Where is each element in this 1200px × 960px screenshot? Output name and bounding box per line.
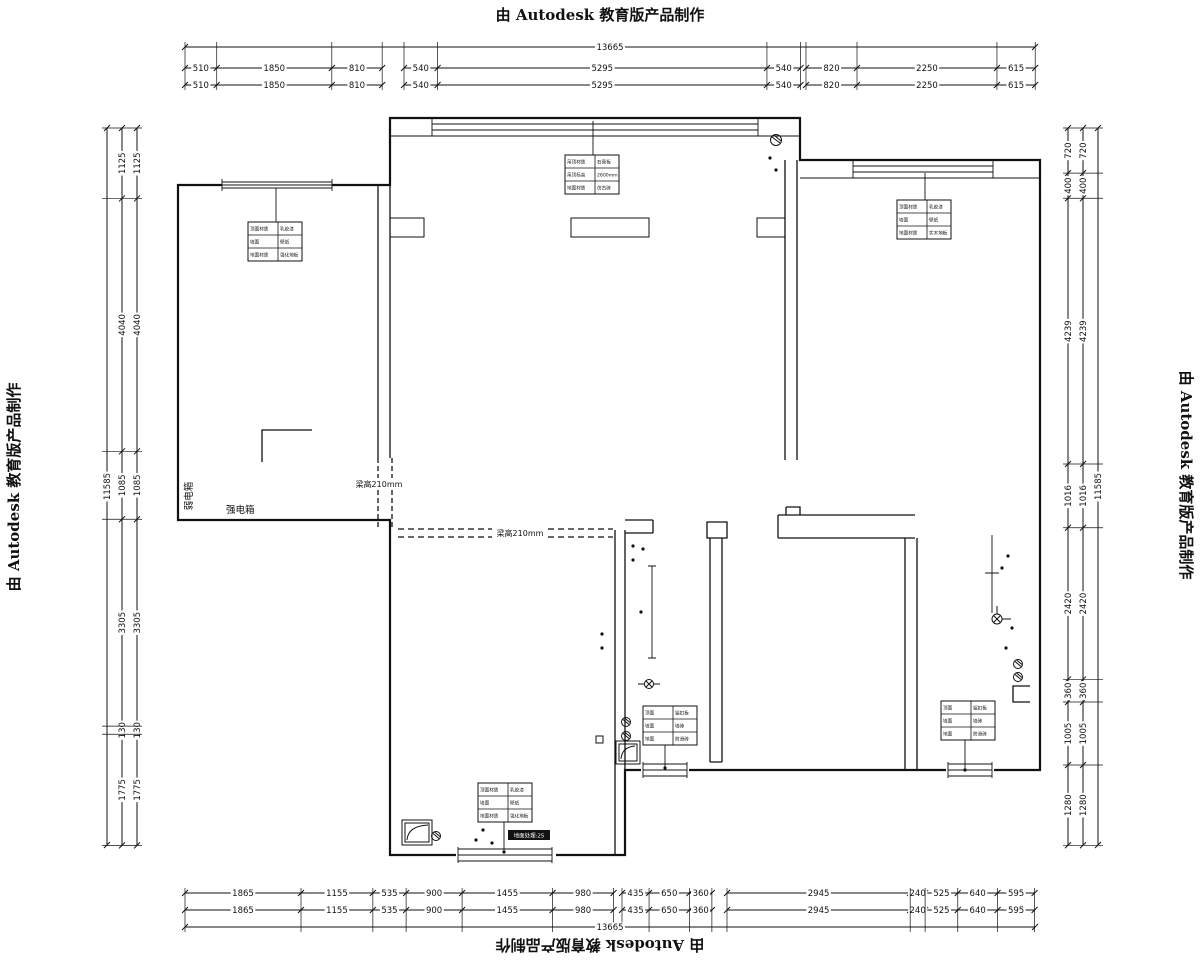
strong-electric-box-label: 强电箱 — [226, 504, 255, 516]
dim-text: 540 — [413, 64, 429, 74]
legend-cell: 墙面 — [250, 239, 260, 246]
legend-cell: 铝扣板 — [675, 710, 689, 717]
dim-text: 13665 — [596, 923, 623, 933]
legend-cell: 防滑砖 — [675, 736, 689, 743]
dim-text: 820 — [823, 81, 839, 91]
column-pillars — [390, 218, 785, 237]
dim-text: 1455 — [497, 906, 519, 916]
stamp-bottom: 由 Autodesk 教育版产品制作 — [496, 936, 705, 954]
legend-cell: 顶面 — [943, 706, 953, 712]
legend-cell: 地面 — [645, 736, 655, 743]
dimensions-bottom: 1865115553590014559801865115553590014559… — [182, 888, 1038, 933]
dim-text: 900 — [426, 889, 442, 899]
dim-text: 980 — [575, 889, 591, 899]
dim-text: 360 — [1064, 683, 1074, 699]
dim-text: 1005 — [1064, 723, 1074, 745]
dim-text: 13665 — [596, 43, 623, 53]
dim-text: 1850 — [263, 81, 285, 91]
dim-text: 720 — [1079, 142, 1089, 158]
dim-text: 2250 — [916, 81, 938, 91]
dim-text: 540 — [776, 81, 792, 91]
dim-text: 130 — [133, 722, 143, 738]
outlet-dots — [474, 156, 1013, 844]
dim-text: 3305 — [133, 612, 143, 634]
legend-cell: 2600mm — [597, 173, 618, 179]
legend-cell: 顶面材质 — [480, 787, 499, 794]
dim-text: 4239 — [1079, 320, 1089, 342]
dim-text: 1085 — [133, 474, 143, 496]
wall-notch — [1013, 686, 1030, 702]
dim-text: 2420 — [1064, 593, 1074, 615]
dim-text: 360 — [1079, 683, 1089, 699]
beam-note-1: 梁高210mm — [352, 478, 406, 489]
dim-text: 525 — [933, 906, 949, 916]
dim-text: 2945 — [808, 906, 830, 916]
dim-text: 510 — [193, 64, 209, 74]
legend-cell: 地面材质 — [250, 252, 269, 259]
dim-text: 1865 — [232, 889, 254, 899]
dimensions-left: 1125404010853305130177511254040108533051… — [102, 125, 143, 848]
dim-text: 810 — [349, 81, 365, 91]
dim-text: 11585 — [1094, 473, 1104, 500]
shower-tray-icon — [616, 741, 640, 764]
pipe-riser — [648, 566, 656, 658]
legend-cell: 壁纸 — [510, 800, 520, 807]
floor-note-chip: 地面处理:25 — [508, 830, 550, 840]
switch-box — [596, 736, 603, 743]
legend-cell: 地面 — [943, 731, 953, 738]
dim-text: 640 — [970, 889, 986, 899]
dim-text: 130 — [118, 722, 128, 738]
svg-text:梁高210mm: 梁高210mm — [356, 479, 403, 489]
dim-text: 615 — [1008, 81, 1024, 91]
dim-text: 4040 — [133, 314, 143, 336]
legend-cell: 乳胶漆 — [510, 787, 524, 794]
dimensions-top: 5101850810510185081054052955405405295540… — [182, 42, 1038, 91]
master-bedroom-legend: 顶面材质乳胶漆墙面壁纸地面材质强化地板 — [478, 783, 532, 854]
closet-step — [262, 430, 312, 462]
window-bedroom2 — [800, 160, 1040, 178]
legend-cell: 石膏板 — [597, 159, 611, 166]
dim-text: 240 — [910, 906, 926, 916]
dim-text: 1155 — [326, 889, 348, 899]
dim-text: 525 — [933, 889, 949, 899]
dim-text: 510 — [193, 81, 209, 91]
dim-text: 595 — [1008, 889, 1024, 899]
dim-text: 1280 — [1064, 794, 1074, 816]
dim-text: 1016 — [1064, 485, 1074, 507]
legend-cell: 地面材质 — [567, 185, 586, 192]
dim-text: 5295 — [591, 64, 613, 74]
floor-drain-icons — [432, 135, 1023, 841]
dim-text: 5295 — [591, 81, 613, 91]
legend-cell: 墙砖 — [973, 718, 983, 725]
dim-text: 1280 — [1079, 794, 1089, 816]
dim-text: 1125 — [118, 152, 128, 174]
dim-text: 1850 — [263, 64, 285, 74]
dim-text: 650 — [661, 906, 677, 916]
dim-text: 240 — [910, 889, 926, 899]
interior-walls — [262, 160, 917, 855]
dim-text: 615 — [1008, 64, 1024, 74]
legend-cell: 乳胶漆 — [929, 204, 943, 211]
window-bedroom1 — [222, 179, 332, 191]
legend-cell: 顶面材质 — [250, 226, 269, 233]
legend-cell: 墙面 — [480, 800, 490, 807]
dim-text: 820 — [823, 64, 839, 74]
svg-text:梁高210mm: 梁高210mm — [497, 528, 544, 538]
legend-cell: 防滑砖 — [973, 731, 987, 738]
living-room-legend: 吊顶材质石膏板吊顶标高2600mm地面材质仿古砖 — [565, 121, 619, 194]
dim-text: 360 — [693, 889, 709, 899]
legend-cell: 地面材质 — [480, 813, 499, 820]
dim-text: 4239 — [1064, 320, 1074, 342]
dim-text: 535 — [381, 889, 397, 899]
legend-cell: 墙面 — [943, 718, 953, 725]
weak-electric-box-label: 弱电箱 — [183, 482, 195, 511]
legend-cell: 强化地板 — [280, 252, 299, 259]
legend-cell: 墙面 — [645, 723, 655, 730]
dim-text: 540 — [413, 81, 429, 91]
dim-text: 435 — [627, 906, 643, 916]
floor-plan-canvas: 由 Autodesk 教育版产品制作 由 Autodesk 教育版产品制作 由 … — [0, 0, 1200, 960]
beam-note-2: 梁高210mm — [492, 527, 548, 538]
bedroom-2-legend: 顶面材质乳胶漆墙面壁纸地面材质实木地板 — [897, 173, 951, 239]
dim-text: 535 — [381, 906, 397, 916]
dim-text: 2420 — [1079, 593, 1089, 615]
dim-text: 435 — [627, 889, 643, 899]
legend-cell: 顶面材质 — [899, 204, 918, 211]
dim-text: 900 — [426, 906, 442, 916]
dim-text: 1016 — [1079, 485, 1089, 507]
window-master — [456, 847, 556, 863]
kitchen-legend: 顶面铝扣板墙面墙砖地面防滑砖 — [941, 701, 995, 772]
dim-text: 1775 — [118, 779, 128, 801]
legend-cell: 乳胶漆 — [280, 226, 294, 233]
legend-cell: 仿古砖 — [597, 185, 611, 192]
dim-text: 11585 — [103, 473, 113, 500]
dim-text: 1865 — [232, 906, 254, 916]
dim-text: 1155 — [326, 906, 348, 916]
legend-cell: 铝扣板 — [973, 705, 987, 712]
dim-text: 4040 — [118, 314, 128, 336]
dim-text: 400 — [1079, 178, 1089, 194]
dim-text: 1125 — [133, 152, 143, 174]
dim-text: 720 — [1064, 142, 1074, 158]
dim-text: 595 — [1008, 906, 1024, 916]
stamp-left: 由 Autodesk 教育版产品制作 — [5, 383, 23, 592]
dim-text: 640 — [970, 906, 986, 916]
legend-cell: 顶面 — [645, 711, 655, 717]
legend-cell: 壁纸 — [929, 217, 939, 224]
legend-cell: 强化地板 — [510, 813, 529, 820]
window-kitchen — [946, 762, 994, 778]
dimensions-right: 7204004239101624203601005128072040042391… — [1063, 125, 1104, 848]
dim-text: 1085 — [118, 474, 128, 496]
dim-text: 3305 — [118, 612, 128, 634]
legend-cell: 壁纸 — [280, 239, 290, 246]
valve-icons — [638, 606, 1011, 689]
dim-text: 810 — [349, 64, 365, 74]
dim-text: 1005 — [1079, 723, 1089, 745]
svg-text:地面处理:25: 地面处理:25 — [514, 832, 545, 840]
dim-text: 980 — [575, 906, 591, 916]
bathroom-legend: 顶面铝扣板墙面墙砖地面防滑砖 — [643, 706, 697, 770]
legend-cell: 地面材质 — [899, 230, 918, 237]
stamp-top: 由 Autodesk 教育版产品制作 — [496, 6, 705, 24]
dim-text: 1455 — [497, 889, 519, 899]
stamp-right: 由 Autodesk 教育版产品制作 — [1177, 371, 1195, 580]
dim-text: 1775 — [133, 779, 143, 801]
dim-text: 2250 — [916, 64, 938, 74]
dim-text: 650 — [661, 889, 677, 899]
dim-text: 540 — [776, 64, 792, 74]
beam-lines — [378, 458, 613, 537]
dim-text: 2945 — [808, 889, 830, 899]
bathtub-icon — [402, 820, 432, 845]
legend-cell: 墙砖 — [675, 723, 685, 730]
legend-cell: 墙面 — [899, 217, 909, 224]
bedroom-1-legend: 顶面材质乳胶漆墙面壁纸地面材质强化地板 — [248, 188, 302, 261]
dim-text: 400 — [1064, 178, 1074, 194]
legend-cell: 吊顶标高 — [567, 172, 586, 179]
legend-cell: 实木地板 — [929, 230, 948, 237]
dim-text: 360 — [693, 906, 709, 916]
window-living — [390, 118, 800, 136]
kitchen-counter — [985, 535, 999, 613]
legend-cell: 吊顶材质 — [567, 159, 586, 166]
